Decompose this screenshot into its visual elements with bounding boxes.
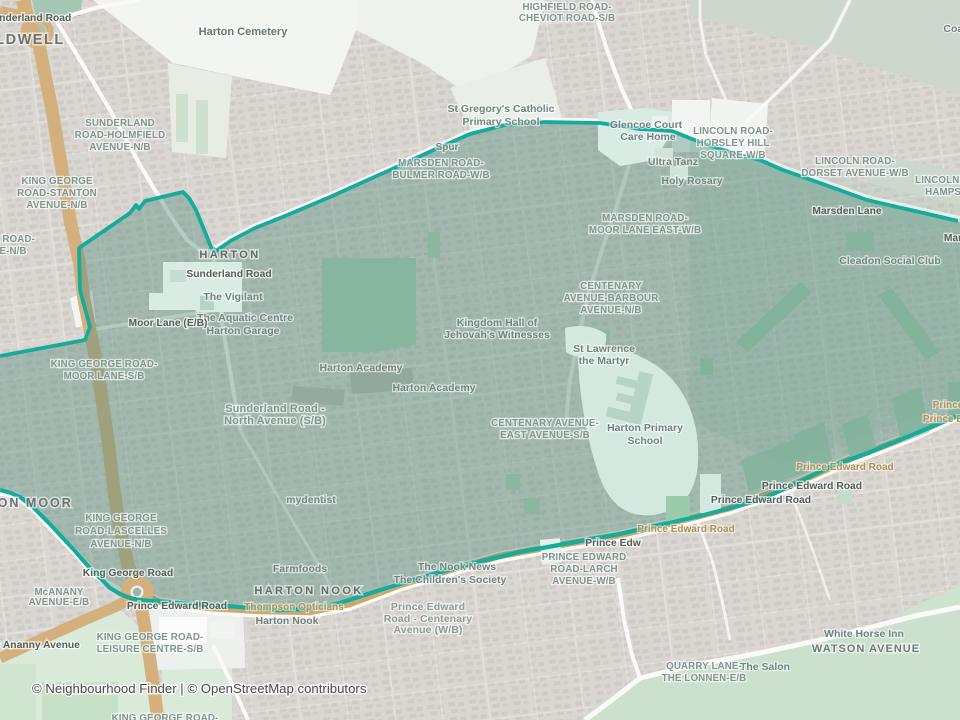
svg-text:Coast: Coast — [943, 23, 960, 35]
svg-text:Sunderland Road: Sunderland Road — [0, 13, 71, 24]
svg-text:Sunderland Road: Sunderland Road — [186, 269, 271, 280]
svg-text:Harton Nook: Harton Nook — [256, 615, 319, 627]
svg-text:AVENUE-N/B: AVENUE-N/B — [89, 142, 150, 153]
svg-text:White Horse Inn: White Horse Inn — [824, 628, 904, 640]
svg-text:MARSDEN ROAD-: MARSDEN ROAD- — [398, 158, 484, 169]
svg-text:Marsden Lane: Marsden Lane — [812, 206, 882, 217]
svg-text:CALDWELL: CALDWELL — [0, 32, 65, 48]
svg-text:SUNDERLAND: SUNDERLAND — [85, 118, 155, 129]
svg-text:Mc Ananny Avenue: Mc Ananny Avenue — [0, 640, 80, 651]
svg-text:Prince Edward Road: Prince Edward Road — [762, 481, 862, 492]
svg-text:Marsden: Marsden — [944, 233, 960, 244]
svg-text:HARTON MOOR: HARTON MOOR — [0, 496, 73, 510]
svg-text:Harton Cemetery: Harton Cemetery — [199, 26, 289, 38]
svg-text:LINCOLN ROAD-: LINCOLN ROAD- — [815, 156, 895, 167]
svg-text:The Aquatic Centre: The Aquatic Centre — [197, 312, 293, 324]
svg-text:AVENUE-N/B: AVENUE-N/B — [26, 200, 87, 211]
svg-text:ROAD-HOLMFIELD: ROAD-HOLMFIELD — [75, 130, 166, 141]
svg-text:ROAD-STANTON: ROAD-STANTON — [17, 188, 97, 199]
svg-text:The Nook News: The Nook News — [418, 561, 496, 573]
svg-text:St Gregory's Catholic: St Gregory's Catholic — [448, 103, 555, 115]
svg-text:BULMER ROAD-W/B: BULMER ROAD-W/B — [392, 170, 489, 181]
svg-text:AVENUE-E/B: AVENUE-E/B — [29, 597, 90, 608]
svg-text:AVENUE-BARBOUR: AVENUE-BARBOUR — [564, 293, 659, 304]
svg-text:Holy Rosary: Holy Rosary — [661, 175, 722, 187]
svg-text:KING GEORGE: KING GEORGE — [21, 176, 93, 187]
svg-text:THE LONNEN-E/B: THE LONNEN-E/B — [662, 673, 747, 684]
svg-text:Thompson Opticians: Thompson Opticians — [244, 602, 344, 613]
svg-text:the Martyr: the Martyr — [579, 355, 630, 367]
svg-text:Glencoe Court: Glencoe Court — [610, 119, 683, 131]
svg-text:Sunderland Road -: Sunderland Road - — [225, 403, 325, 415]
svg-text:Cleadon Social Club: Cleadon Social Club — [839, 255, 941, 267]
svg-text:St Lawrence: St Lawrence — [573, 343, 635, 355]
svg-text:CENTENARY: CENTENARY — [580, 281, 642, 292]
svg-text:LINCOLN ROAD-: LINCOLN ROAD- — [693, 126, 773, 137]
svg-text:The Children's Society: The Children's Society — [394, 574, 507, 586]
svg-text:HAMPSHIRE: HAMPSHIRE — [925, 187, 960, 198]
svg-text:Prince Edward Road: Prince Edward Road — [127, 601, 227, 612]
svg-text:CHEVIOT ROAD-S/B: CHEVIOT ROAD-S/B — [519, 13, 615, 24]
svg-text:Harton Primary: Harton Primary — [607, 422, 683, 434]
svg-text:SQUARE-W/B: SQUARE-W/B — [700, 150, 765, 161]
svg-text:AVENUE-W/B: AVENUE-W/B — [552, 576, 615, 587]
svg-text:ROAD-LARCH: ROAD-LARCH — [550, 564, 617, 575]
svg-text:AVENUE-N/B: AVENUE-N/B — [0, 246, 27, 257]
svg-text:HORSLEY HILL: HORSLEY HILL — [697, 138, 770, 149]
svg-text:HIGHFIELD ROAD-: HIGHFIELD ROAD- — [522, 2, 611, 13]
svg-text:Care Home: Care Home — [620, 131, 676, 143]
svg-text:WATSON AVENUE: WATSON AVENUE — [812, 643, 920, 655]
svg-text:AVENUE-N/B: AVENUE-N/B — [580, 305, 641, 316]
svg-text:Primary School: Primary School — [462, 116, 539, 128]
svg-text:KING GEORGE ROAD-: KING GEORGE ROAD- — [51, 359, 158, 370]
svg-text:HARTON NOOK: HARTON NOOK — [254, 585, 363, 597]
svg-text:Prince Edward Road: Prince Edward Road — [637, 524, 734, 535]
svg-text:DORSET AVENUE-W/B: DORSET AVENUE-W/B — [801, 168, 908, 179]
svg-text:Prince Ed: Prince Ed — [923, 414, 960, 425]
svg-text:KING GEORGE: KING GEORGE — [85, 513, 157, 524]
svg-text:The Salon: The Salon — [740, 661, 790, 673]
svg-text:Prince Edward: Prince Edward — [391, 601, 465, 613]
svg-text:AVENUE-N/B: AVENUE-N/B — [90, 539, 151, 550]
svg-text:Farmfoods: Farmfoods — [273, 563, 327, 575]
svg-text:PRINCE EDWARD: PRINCE EDWARD — [542, 552, 627, 563]
svg-text:EAST AVENUE-S/B: EAST AVENUE-S/B — [500, 430, 590, 441]
svg-text:KING GEORGE ROAD-: KING GEORGE ROAD- — [112, 713, 219, 720]
svg-text:Ultra Tanz: Ultra Tanz — [648, 156, 698, 168]
svg-text:Harton Garage: Harton Garage — [207, 325, 280, 337]
svg-text:Jehovah's Witnesses: Jehovah's Witnesses — [444, 329, 550, 341]
svg-text:Avenue (W/B): Avenue (W/B) — [393, 624, 462, 636]
svg-text:Spur: Spur — [436, 142, 459, 153]
svg-text:Prince Edw: Prince Edw — [585, 538, 641, 549]
svg-text:King George Road: King George Road — [83, 568, 173, 579]
svg-text:Kingdom Hall of: Kingdom Hall of — [457, 317, 538, 329]
svg-text:HARTON: HARTON — [199, 249, 260, 261]
svg-text:BULMER ROAD-: BULMER ROAD- — [0, 234, 35, 245]
svg-text:© Neighbourhood Finder | © Ope: © Neighbourhood Finder | © OpenStreetMap… — [32, 681, 367, 696]
svg-text:Harton Academy: Harton Academy — [319, 362, 402, 374]
svg-text:CENTENARY AVENUE-: CENTENARY AVENUE- — [491, 418, 599, 429]
svg-text:Harton Academy: Harton Academy — [392, 382, 475, 394]
svg-text:MOOR LANE-S/B: MOOR LANE-S/B — [64, 371, 145, 382]
svg-text:QUARRY LANE-: QUARRY LANE- — [666, 661, 742, 672]
svg-text:Prince: Prince — [933, 400, 960, 411]
svg-text:The Vigilant: The Vigilant — [203, 291, 263, 303]
svg-text:School: School — [627, 435, 662, 447]
svg-text:LEISURE CENTRE-S/B: LEISURE CENTRE-S/B — [97, 644, 204, 655]
svg-text:Prince Edward Road: Prince Edward Road — [796, 462, 893, 473]
svg-text:North Avenue (S/B): North Avenue (S/B) — [224, 415, 326, 427]
svg-text:LINCOLN ROAD-: LINCOLN ROAD- — [915, 175, 960, 186]
svg-text:MOOR LANE EAST-W/B: MOOR LANE EAST-W/B — [589, 225, 701, 236]
svg-text:ROAD-LASCELLES: ROAD-LASCELLES — [75, 526, 167, 537]
svg-text:KING GEORGE ROAD-: KING GEORGE ROAD- — [97, 632, 204, 643]
svg-text:MARSDEN ROAD-: MARSDEN ROAD- — [602, 213, 688, 224]
svg-text:mydentist: mydentist — [286, 494, 336, 506]
svg-text:Moor Lane (E/B): Moor Lane (E/B) — [129, 318, 208, 329]
svg-text:Prince Edward Road: Prince Edward Road — [711, 495, 811, 506]
